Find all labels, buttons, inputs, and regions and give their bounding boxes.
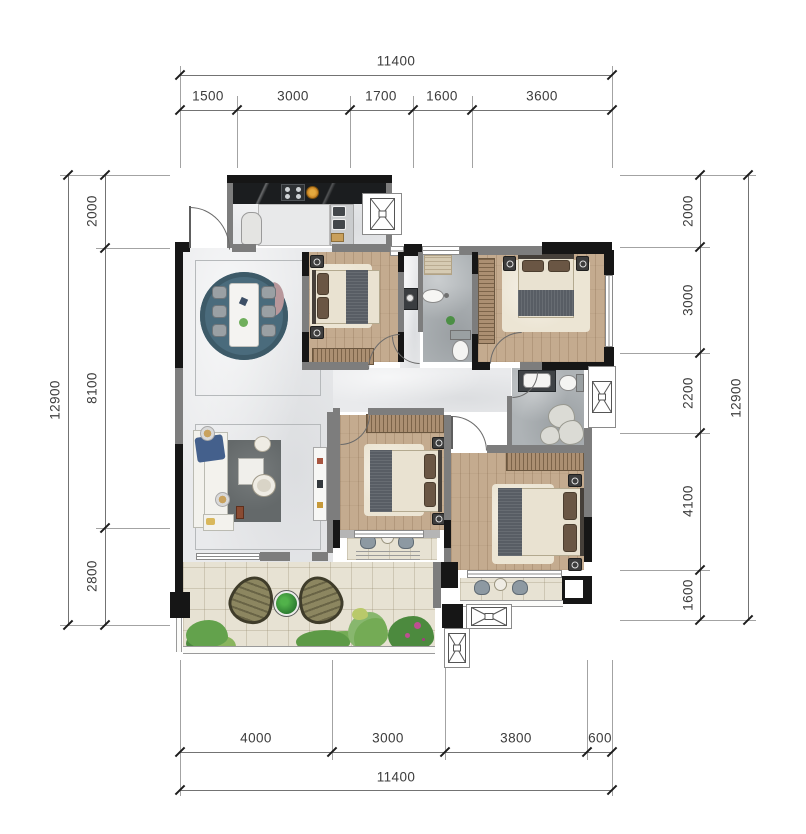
master-toilet-tank (576, 374, 584, 392)
tv-deco-2 (317, 480, 323, 488)
master-pillow (563, 492, 577, 520)
floor-lamp (215, 492, 230, 507)
bedroom3-wardrobe (366, 414, 444, 433)
master-balcony-chair (474, 580, 490, 595)
master-door-leaf (451, 416, 453, 449)
floor-lamp (200, 426, 215, 441)
sofa-pillow-yellow (206, 518, 215, 525)
bedroom1-pillow (522, 260, 544, 272)
wall-kitchen-bottom-right (332, 244, 390, 252)
master-nightstand (568, 474, 582, 487)
ac-icon-right (592, 381, 612, 413)
masterbalcony-corner-notch (565, 580, 583, 598)
wall-left-lower (175, 444, 183, 594)
shower-stone (540, 426, 560, 445)
kitchen-island (258, 204, 330, 246)
wall-dining-bed2-a (302, 252, 309, 276)
bedroom1-wardrobe (478, 258, 495, 344)
bedroom3-pillow (424, 454, 436, 479)
kitchen-tray (331, 233, 344, 242)
flue-icon-kitchen (370, 198, 395, 230)
wall-corridor-bottom-a (333, 408, 340, 415)
screenshot-root: { "dimensions": { "top": { "total": "114… (0, 0, 806, 834)
master-pillow (563, 524, 577, 552)
wall-bed3balcony-left (340, 530, 354, 538)
wall-bed3-master-a (444, 415, 451, 520)
toilet-bowl (452, 340, 469, 361)
window-bathroom2 (422, 246, 460, 255)
terrace-door-panel (312, 552, 328, 561)
sink-basin-1 (332, 206, 346, 217)
bedroom2-pillow (317, 273, 329, 295)
bedroom3-pillow (424, 482, 436, 507)
floor-plan (0, 0, 806, 834)
wall-master-top (487, 445, 512, 453)
sink-basin-2 (332, 219, 346, 230)
balcony3-steps (356, 551, 420, 561)
basin-faucet (444, 293, 449, 298)
dining-chair (212, 286, 227, 299)
wall-bed2-right-a (398, 252, 404, 272)
window-living-terrace (196, 553, 260, 560)
ac-icon-bottom-v (448, 633, 466, 663)
washbasin (422, 289, 444, 303)
wall-bath2-left (418, 252, 423, 332)
tv-deco-1 (317, 458, 323, 464)
ac-icon-bottom-h (471, 607, 507, 626)
master-blanket (498, 488, 522, 556)
wall-bed3-left-a (333, 415, 340, 520)
corridor-floor (333, 368, 511, 412)
terrace-door-panel (260, 552, 290, 561)
wall-bed3-master-b (444, 520, 451, 548)
wall-dining-bed2-b (302, 276, 309, 332)
terrace-potted-plant (276, 593, 297, 614)
bedroom1-blanket (518, 290, 574, 316)
wall-bed2-right-b (398, 272, 404, 332)
wall-bath2-right-a (472, 252, 478, 274)
wall-kitchen-bottom-left (232, 244, 256, 252)
wall-kitchen-top (227, 175, 392, 183)
master-door-arc (452, 416, 487, 451)
dining-chair (261, 324, 276, 337)
wok-pan (306, 186, 319, 199)
tv-deco-3 (317, 502, 323, 508)
wall-right-pier-top (604, 250, 614, 275)
master-wardrobe (506, 452, 584, 471)
bathroom2-mat (424, 255, 452, 275)
toilet-tank (450, 330, 471, 340)
wall-bath2-right-c (472, 334, 478, 370)
wall-bed3balcony-right (424, 530, 440, 538)
wall-masterbath-left (507, 396, 512, 445)
bedroom2-nightstand (310, 326, 324, 339)
wall-corridor-bottom-b (368, 408, 444, 415)
terrace-grass-tuft (352, 608, 368, 620)
terrace-flower (414, 622, 421, 629)
master-toilet-bowl (559, 375, 577, 391)
shower-stone (558, 420, 584, 445)
stove (281, 184, 305, 201)
dining-chair (261, 286, 276, 299)
dining-chair (212, 324, 227, 337)
side-stool (236, 506, 244, 519)
master-balcony-table (494, 578, 507, 591)
wall-left-middle (175, 368, 183, 444)
dining-chair (212, 305, 227, 318)
wall-bath2-right-b (472, 274, 478, 334)
terrace-rail-bottom (183, 646, 435, 654)
bedroom2-pillow (317, 297, 329, 319)
washing-machine-door (406, 294, 414, 302)
bedroom2-headboard (312, 270, 316, 324)
wall-left-upper (175, 248, 183, 368)
fridge (241, 212, 262, 245)
wall-masterbath-bottom (512, 445, 584, 453)
wall-bed3-left-b (333, 520, 340, 548)
entry-door-leaf (189, 206, 191, 248)
wall-mid-horizontal (302, 362, 368, 370)
terrace-bush (186, 620, 228, 648)
dining-chair (261, 305, 276, 318)
dining-table (229, 283, 259, 347)
wall-left-pier (170, 592, 190, 618)
wall-top-black-right (542, 242, 612, 254)
master-nightstand (568, 558, 582, 571)
wall-masterbalcony-pier-left (440, 562, 458, 588)
bedroom2-blanket (346, 270, 368, 324)
bedroom1-nightstand (576, 256, 589, 271)
side-table (254, 436, 271, 452)
dining-centerpiece (239, 318, 248, 327)
window-bedroom1 (605, 275, 613, 347)
bedroom1-pillow (548, 260, 570, 272)
window-bed3-balcony (354, 530, 424, 538)
coffee-table-round (252, 474, 276, 497)
terrace-rail-left (176, 618, 182, 652)
wall-terrace-pier (442, 604, 463, 628)
wall-master-right-grey (584, 428, 592, 517)
bedroom1-nightstand (503, 256, 516, 271)
window-master-balcony (467, 570, 562, 578)
bedroom3-headboard (438, 450, 442, 512)
bathroom2-plant (446, 316, 455, 325)
bedroom2-nightstand (310, 255, 324, 268)
terrace-right-wall (433, 562, 441, 608)
bedroom3-blanket (370, 450, 392, 512)
master-balcony-chair (512, 580, 528, 595)
entry-door-arc (190, 207, 230, 250)
wall-bedroom1-bottom-b (520, 362, 542, 370)
wall-master-right-black (584, 517, 592, 562)
stove-burner (285, 187, 290, 192)
